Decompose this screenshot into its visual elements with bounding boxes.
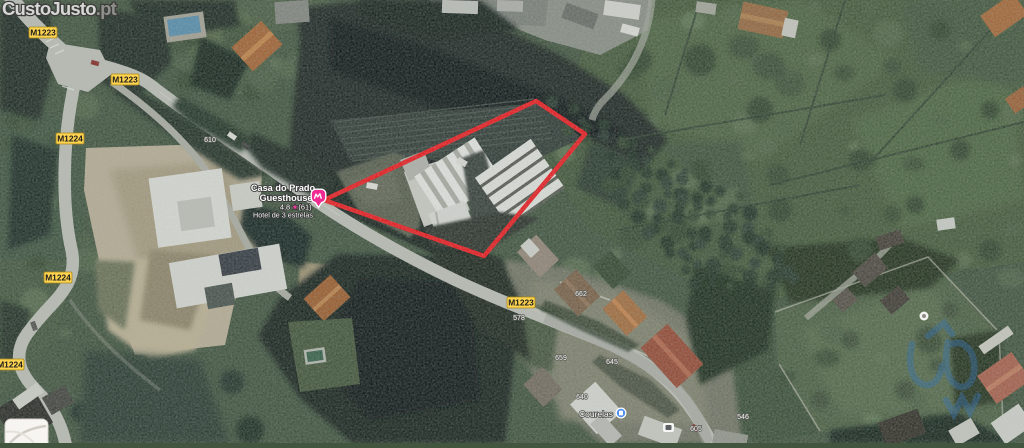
svg-text:M1223: M1223 xyxy=(112,75,138,85)
svg-text:CustoJusto.pt: CustoJusto.pt xyxy=(2,0,117,19)
svg-text:610: 610 xyxy=(204,137,216,144)
svg-text:M1223: M1223 xyxy=(30,28,56,38)
svg-text:645: 645 xyxy=(606,359,618,366)
svg-text:Courelas: Courelas xyxy=(579,409,613,419)
svg-text:662: 662 xyxy=(575,291,587,298)
svg-text:578: 578 xyxy=(513,315,525,322)
svg-text:Casa do Prado: Casa do Prado xyxy=(251,183,316,193)
svg-text:M1223: M1223 xyxy=(508,298,534,308)
svg-text:546: 546 xyxy=(737,414,749,421)
svg-text:Hotel de 3 estrelas: Hotel de 3 estrelas xyxy=(253,211,313,220)
svg-text:M1224: M1224 xyxy=(57,134,83,144)
svg-text:605: 605 xyxy=(690,426,702,433)
svg-text:Guesthouse: Guesthouse xyxy=(259,193,312,203)
svg-text:M1224: M1224 xyxy=(0,360,23,370)
svg-text:640: 640 xyxy=(576,394,588,401)
svg-text:M1224: M1224 xyxy=(45,273,71,283)
svg-text:659: 659 xyxy=(555,355,567,362)
